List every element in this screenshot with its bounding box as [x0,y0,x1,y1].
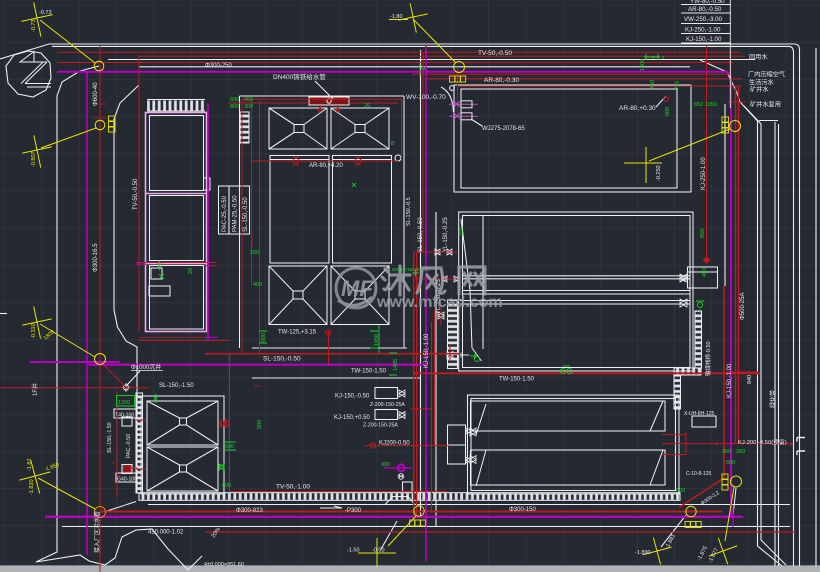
svg-text:-1.820: -1.820 [29,479,35,495]
svg-text:PAC-25,-0.50: PAC-25,-0.50 [222,195,228,232]
svg-text:C-10-8-125: C-10-8-125 [686,471,712,477]
svg-text:600: 600 [665,107,671,116]
svg-text:G40-100: G40-100 [117,477,137,483]
svg-text:T40-100: T40-100 [115,413,134,419]
svg-text:Φ300-16.5: Φ300-16.5 [93,243,99,272]
svg-text:Φ300-150: Φ300-150 [509,507,536,513]
svg-text:矿井水复用: 矿井水复用 [750,101,781,109]
svg-text:SL-150,-0.50: SL-150,-0.50 [243,197,249,232]
svg-text:YL-150,-0.25: YL-150,-0.25 [443,217,449,252]
svg-text:-0.50: -0.50 [372,548,385,554]
svg-text:600: 600 [222,483,231,489]
svg-text:回用水: 回用水 [749,53,768,61]
svg-text:840: 840 [747,375,753,384]
svg-text:SL-150,-0.50: SL-150,-0.50 [418,217,424,252]
svg-text:500: 500 [726,460,735,466]
svg-text:1F井: 1F井 [31,383,39,396]
svg-text:AR-80,-0.30: AR-80,-0.30 [484,77,519,84]
svg-text:矿井水: 矿井水 [750,86,769,94]
svg-text:KJ-150,-1.00: KJ-150,-1.00 [424,333,430,368]
svg-text:950: 950 [700,229,706,238]
svg-text:DN400铸铁给水管: DN400铸铁给水管 [273,72,326,81]
svg-text:26: 26 [364,103,370,109]
svg-text:-1.890: -1.890 [635,550,651,556]
svg-text:-1.82: -1.82 [27,458,33,471]
svg-text:8: 8 [391,141,394,147]
svg-text:AR-80,+0.30: AR-80,+0.30 [619,105,656,112]
svg-text:PAC,-0.50: PAC,-0.50 [126,434,132,458]
svg-text:350: 350 [722,449,731,455]
svg-text:WV-100,-0.70: WV-100,-0.70 [406,94,446,101]
svg-text:Φ300-823: Φ300-823 [236,508,263,514]
svg-text:VW-250,-3.00: VW-250,-3.00 [684,16,723,23]
svg-text:AR-80,-0.50: AR-80,-0.50 [688,6,722,13]
svg-text:生活污水: 生活污水 [749,79,775,87]
svg-text:KJ-150,-1.00: KJ-150,-1.00 [686,36,722,43]
svg-text:KJ-150,-0.50: KJ-150,-0.50 [335,394,370,400]
svg-text:TV-50,-1.00: TV-50,-1.00 [276,484,310,491]
svg-text:Φ500-25A: Φ500-25A [740,293,746,320]
svg-text:Φ600-40: Φ600-40 [93,82,99,106]
svg-text:AR-80,+4.20: AR-80,+4.20 [309,163,344,169]
svg-text:750: 750 [675,81,681,90]
svg-text:Φ1000沉井: Φ1000沉井 [131,363,161,371]
svg-text:350: 350 [736,449,745,455]
svg-text:TW-150-1.50: TW-150-1.50 [499,377,535,383]
svg-text:TW-150-1.50: TW-150-1.50 [351,369,387,375]
svg-text:SL-150,-1.50: SL-150,-1.50 [159,383,194,389]
svg-text:WJ275-2078-65: WJ275-2078-65 [482,126,525,132]
svg-text:600: 600 [261,333,267,342]
svg-text:KJ-250-1.00: KJ-250-1.00 [701,157,707,190]
svg-text:PAM-25,-0.50: PAM-25,-0.50 [233,195,239,232]
svg-text:600: 600 [676,488,685,494]
svg-text:Φ300-250: Φ300-250 [205,63,232,69]
svg-text:200: 200 [244,97,253,103]
svg-text:1495: 1495 [393,359,399,371]
svg-text:450: 450 [702,268,708,277]
svg-text:TV-50,-0.50: TV-50,-0.50 [478,50,512,57]
svg-text:900: 900 [381,462,390,468]
svg-text:500: 500 [257,420,263,429]
svg-text:400: 400 [253,282,262,288]
svg-text:KJ-150,-1.00: KJ-150,-1.00 [727,363,733,398]
svg-text:-1.50: -1.50 [347,548,360,554]
svg-text:KJ-250,-1.00: KJ-250,-1.00 [685,27,721,34]
svg-text:150: 150 [459,227,465,236]
svg-text:KJ-150,+0.50: KJ-150,+0.50 [334,415,371,421]
svg-text:-0.73: -0.73 [39,10,52,16]
svg-text:20: 20 [188,268,194,274]
svg-text:-0.310: -0.310 [31,323,37,339]
svg-text:接入厂区污水管: 接入厂区污水管 [93,511,101,553]
svg-text:650 1050: 650 1050 [694,102,717,108]
svg-text:1300: 1300 [118,400,130,406]
svg-text:SL-150,-1.50: SL-150,-1.50 [107,422,113,453]
svg-text:450: 450 [650,80,656,89]
svg-text:KJ200-0.50: KJ200-0.50 [379,441,410,447]
svg-text:输煤栈桥-0.50: 输煤栈桥-0.50 [704,341,712,376]
svg-text:SL-150,-0.50: SL-150,-0.50 [263,356,301,363]
svg-text:www.mfcad.com: www.mfcad.com [376,294,503,311]
svg-text:-0.250: -0.250 [656,165,662,181]
svg-text:-P300: -P300 [345,508,362,514]
svg-text:厂内压缩空气: 厂内压缩空气 [748,71,785,79]
svg-text:-0.73: -0.73 [31,19,37,32]
svg-text:MF: MF [341,276,373,301]
svg-text:300: 300 [244,104,253,110]
svg-text:-0.807: -0.807 [31,151,37,167]
svg-text:4±0.000-1.02: 4±0.000-1.02 [148,530,184,536]
svg-text:4±0.000=951.60: 4±0.000=951.60 [204,562,244,568]
svg-text:绿化带: 绿化带 [769,390,777,408]
svg-text:1400: 1400 [640,59,646,71]
svg-text:200: 200 [250,250,259,256]
svg-text:X-UH-8H-125: X-UH-8H-125 [684,411,715,417]
svg-text:Z-200-150-25A: Z-200-150-25A [363,423,398,429]
svg-text:600: 600 [230,97,239,103]
svg-text:SL-150,-0.5: SL-150,-0.5 [406,197,412,226]
svg-text:Z-200-150-25A: Z-200-150-25A [370,402,405,408]
svg-text:TW-125,+3.15: TW-125,+3.15 [278,330,317,336]
svg-text:800: 800 [230,104,239,110]
svg-text:TV-50,-0.50: TV-50,-0.50 [133,178,139,210]
svg-text:500: 500 [225,444,234,450]
svg-text:KJ-200,-0.50(预留): KJ-200,-0.50(预留) [738,438,787,446]
